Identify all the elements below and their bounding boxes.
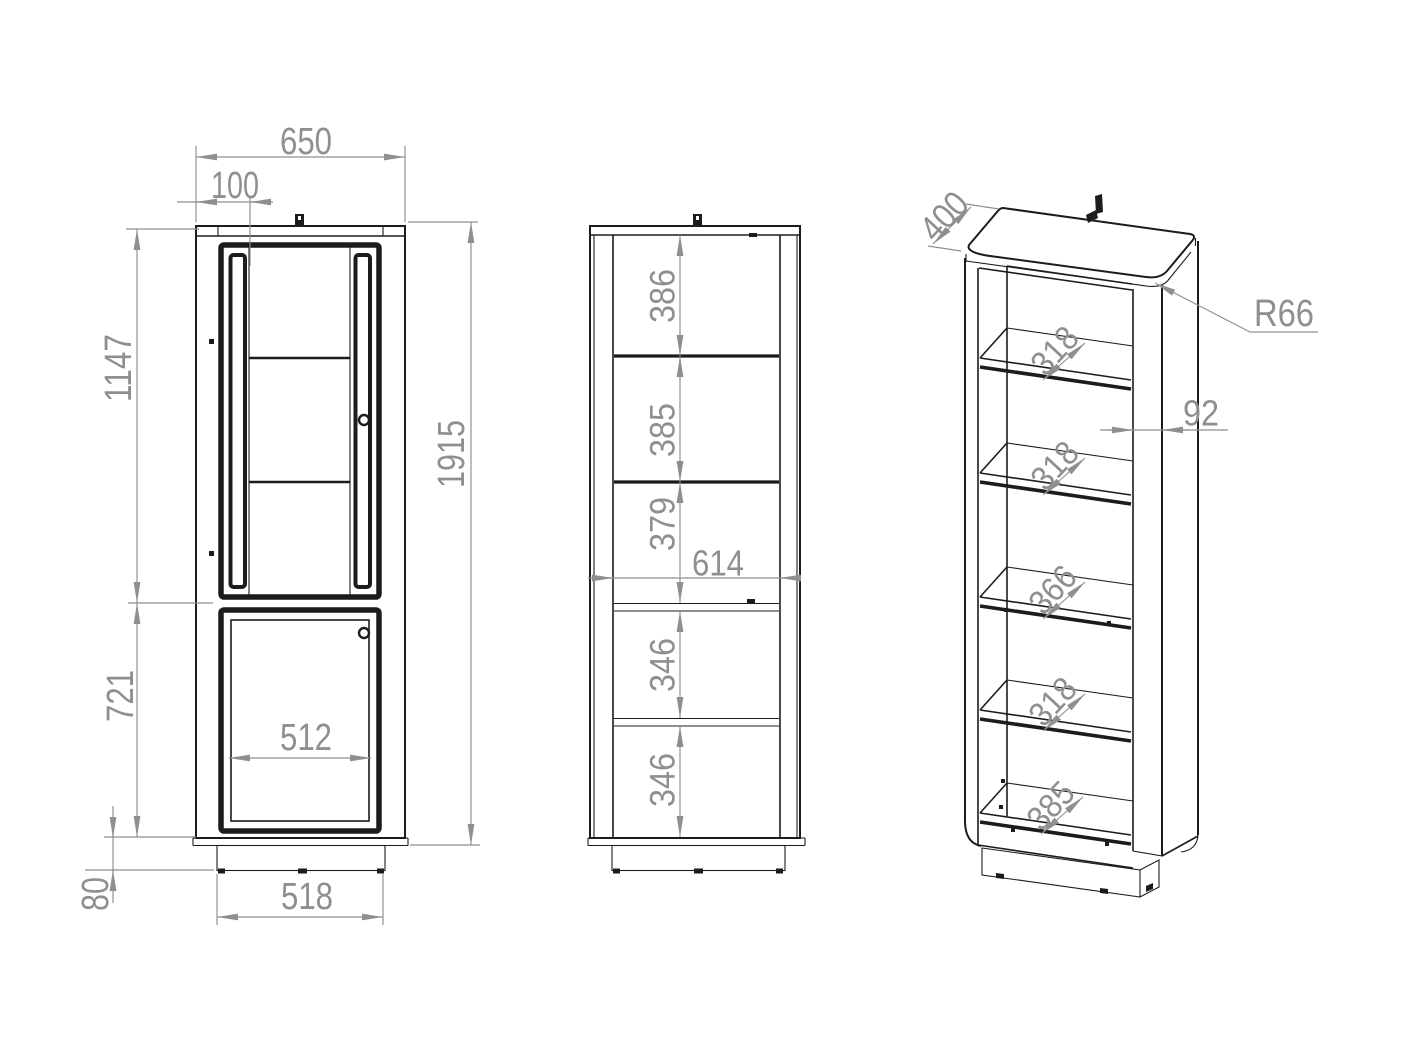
dim-middle-inner-width: 614	[692, 543, 744, 584]
iso-plinth-front	[982, 848, 1140, 897]
dim-front-top-width: 650	[280, 121, 332, 163]
dim-middle-gap1: 386	[644, 269, 683, 323]
dim-iso-corner-radius: R66	[1254, 293, 1314, 335]
dim-middle-gap3: 379	[644, 497, 683, 551]
iso-top-face	[969, 208, 1195, 277]
glass-strip-left	[231, 255, 246, 587]
middle-top-handle	[693, 214, 702, 226]
cabinet-drawing-svg: 650 100 1147 721 80 512	[0, 0, 1401, 1050]
dim-middle-gap2: 385	[644, 403, 683, 457]
middle-cabinet-outline	[590, 226, 800, 838]
hinge-mark-top	[209, 339, 214, 344]
technical-drawing-page: 650 100 1147 721 80 512	[0, 0, 1401, 1050]
iso-plinth-side	[1140, 860, 1159, 897]
lower-door-knob	[359, 628, 369, 638]
iso-view: 400 R66 92 318 318 366 318 385	[911, 183, 1318, 897]
dim-iso-front-post-width: 92	[1183, 393, 1219, 434]
upper-door-knob	[359, 415, 369, 425]
dim-front-lower-door-height: 721	[100, 670, 142, 722]
iso-top-handle	[1086, 194, 1103, 223]
middle-dimensions: 386 385 379 614 346 346	[588, 235, 801, 837]
dim-middle-gap4: 346	[644, 638, 683, 692]
iso-base	[965, 822, 1198, 897]
dim-iso-depth: 400	[911, 183, 976, 249]
dim-front-lower-door-width: 512	[280, 717, 332, 759]
hinge-mark-bottom	[209, 551, 214, 556]
middle-plinth	[612, 846, 785, 871]
dim-front-upper-door-height: 1147	[98, 334, 140, 402]
dim-front-glass-offset: 100	[211, 165, 259, 207]
front-dimensions: 650 100 1147 721 80 512	[75, 121, 480, 925]
dim-middle-gap5: 346	[644, 753, 683, 807]
front-view: 650 100 1147 721 80 512	[75, 121, 480, 925]
dim-front-base-width: 518	[281, 876, 333, 918]
front-base	[193, 838, 408, 874]
hinge-plate-top	[749, 233, 757, 237]
shelf-support-mark	[747, 599, 755, 603]
front-plinth	[217, 846, 385, 871]
middle-view: 386 385 379 614 346 346	[588, 214, 805, 874]
middle-base	[588, 838, 805, 874]
front-upper-door	[209, 245, 379, 597]
dim-front-plinth-height: 80	[75, 877, 117, 911]
front-top-handle	[295, 214, 304, 226]
dim-front-total-height: 1915	[431, 420, 473, 488]
